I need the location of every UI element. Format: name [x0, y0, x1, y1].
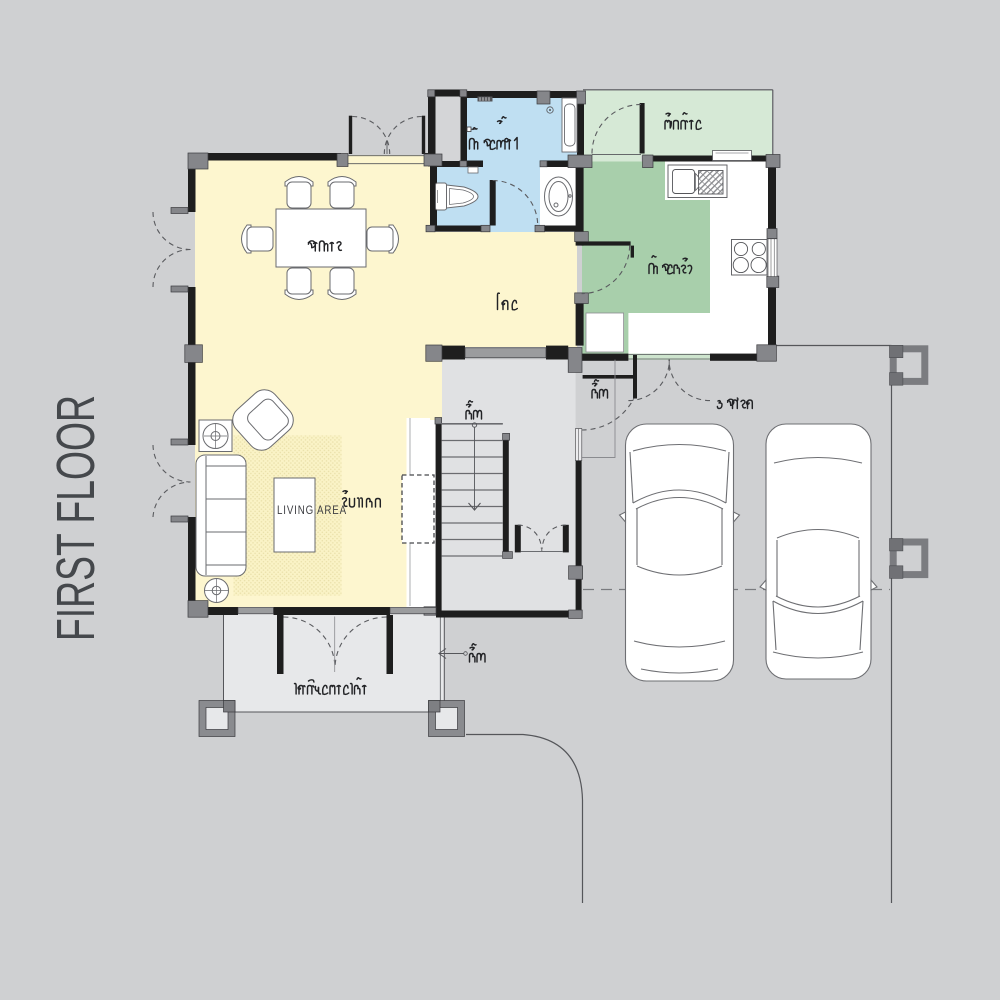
svg-text:LIVING AREA: LIVING AREA	[277, 505, 347, 517]
svg-text:FIRST FLOOR: FIRST FLOOR	[46, 395, 106, 641]
